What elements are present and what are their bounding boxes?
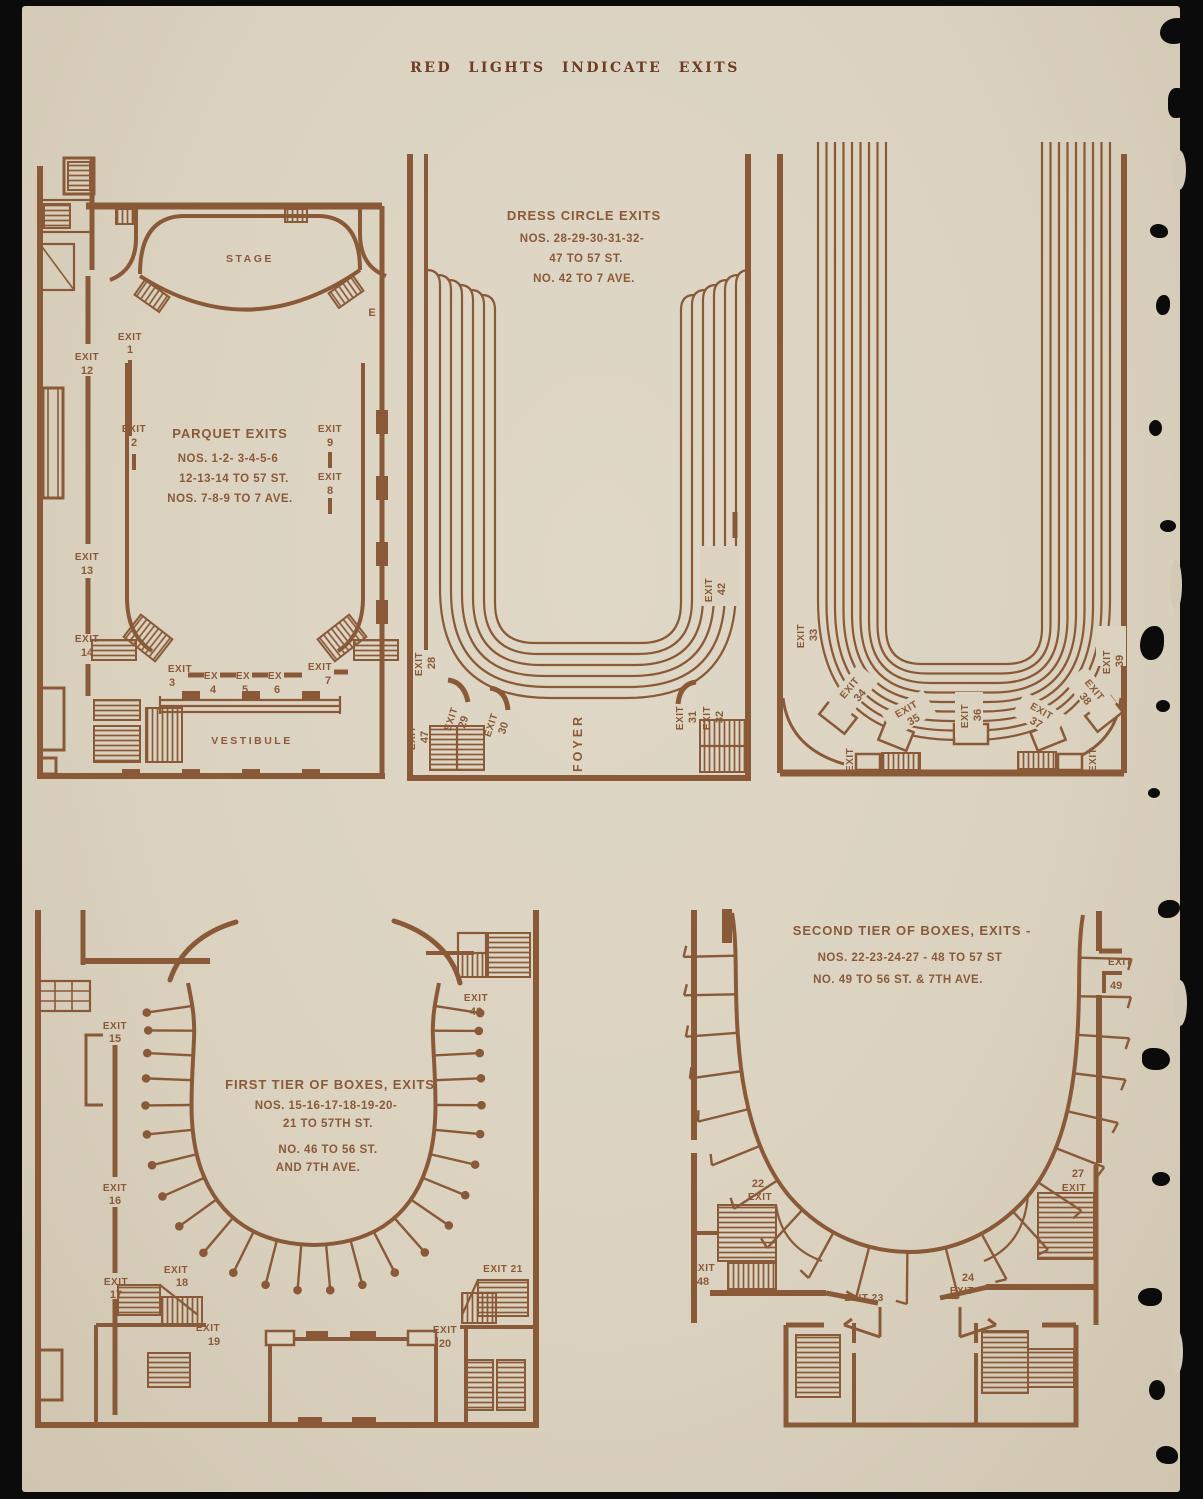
second-tier-info-line: NO. 49 TO 56 ST. & 7TH AVE. bbox=[813, 974, 983, 986]
exit-36-label: EXIT36 bbox=[955, 692, 984, 738]
svg-text:42: 42 bbox=[716, 583, 728, 595]
exit-4-label: EX4 bbox=[204, 671, 218, 696]
balcony-corner-exit-right: EXIT bbox=[1088, 748, 1099, 772]
svg-text:14: 14 bbox=[81, 647, 94, 659]
svg-text:27: 27 bbox=[1072, 1168, 1084, 1180]
balcony-seating-rows bbox=[818, 142, 1110, 740]
svg-text:31: 31 bbox=[687, 711, 699, 723]
balcony-stairs bbox=[856, 752, 1082, 770]
svg-text:EX: EX bbox=[204, 671, 218, 682]
parquet-info-line: 12-13-14 TO 57 ST. bbox=[179, 473, 289, 485]
first-tier-floor-plan: FIRST TIER OF BOXES, EXITS NOS. 15-16-17… bbox=[30, 895, 546, 1469]
svg-text:EXIT: EXIT bbox=[318, 472, 342, 483]
exit-12-label: EXIT12 bbox=[75, 352, 99, 377]
balcony-corner-exit-left: EXIT bbox=[845, 748, 856, 772]
svg-text:17: 17 bbox=[110, 1289, 122, 1301]
svg-text:EXIT: EXIT bbox=[950, 1286, 974, 1297]
exit-46-label: EXIT46 bbox=[464, 993, 488, 1018]
svg-text:47: 47 bbox=[419, 731, 431, 743]
balcony-labels: EXIT33 EXIT34 EXIT35 EXIT36 EXIT37 EXIT3… bbox=[796, 624, 1126, 772]
exit-1-label: EXIT1 bbox=[118, 332, 142, 356]
vestibule-label: VESTIBULE bbox=[211, 735, 292, 747]
svg-text:EXIT: EXIT bbox=[75, 552, 99, 563]
svg-text:EXIT: EXIT bbox=[318, 424, 342, 435]
svg-text:8: 8 bbox=[327, 485, 333, 497]
exit-21-label: EXIT 21 bbox=[483, 1264, 523, 1275]
svg-text:EXIT: EXIT bbox=[407, 726, 418, 750]
svg-text:33: 33 bbox=[808, 629, 820, 641]
second-tier-info-line: NOS. 22-23-24-27 - 48 TO 57 ST bbox=[818, 952, 1003, 964]
first-tier-info-title: FIRST TIER OF BOXES, EXITS bbox=[225, 1077, 435, 1092]
svg-text:30: 30 bbox=[496, 720, 511, 735]
page-title: RED LIGHTS INDICATE EXITS bbox=[410, 60, 740, 76]
svg-text:1: 1 bbox=[127, 344, 133, 356]
first-tier-info-line: NOS. 15-16-17-18-19-20- bbox=[255, 1100, 398, 1112]
svg-text:EX: EX bbox=[236, 671, 250, 682]
svg-text:15: 15 bbox=[109, 1033, 121, 1045]
svg-text:EXIT: EXIT bbox=[1062, 1183, 1086, 1194]
svg-text:EX: EX bbox=[268, 671, 282, 682]
svg-text:EXIT: EXIT bbox=[675, 706, 686, 730]
parquet-info-line: NOS. 7-8-9 TO 7 AVE. bbox=[167, 493, 292, 505]
exit-13-label: EXIT13 bbox=[75, 552, 99, 577]
svg-text:EXIT: EXIT bbox=[103, 1183, 127, 1194]
svg-text:20: 20 bbox=[439, 1338, 451, 1350]
svg-text:EXIT: EXIT bbox=[702, 706, 713, 730]
svg-text:16: 16 bbox=[109, 1195, 121, 1207]
svg-text:EXIT: EXIT bbox=[75, 634, 99, 645]
svg-text:48: 48 bbox=[697, 1276, 709, 1288]
exit-31-label: EXIT31 bbox=[675, 706, 699, 730]
scanned-program-page: RED LIGHTS INDICATE EXITS bbox=[0, 0, 1203, 1499]
exit-23-label: EXIT 23 bbox=[844, 1293, 884, 1304]
dress-circle-info-line: 47 TO 57 ST. bbox=[549, 253, 623, 265]
stage-label: STAGE bbox=[226, 253, 274, 265]
svg-text:18: 18 bbox=[176, 1277, 188, 1289]
svg-text:46: 46 bbox=[470, 1006, 482, 1018]
svg-text:EXIT: EXIT bbox=[1088, 748, 1099, 772]
dress-circle-walls bbox=[410, 154, 748, 778]
svg-text:13: 13 bbox=[81, 565, 93, 577]
dress-circle-seating-rows bbox=[427, 270, 749, 698]
svg-text:EXIT: EXIT bbox=[118, 332, 142, 343]
door-swing-23 bbox=[844, 1307, 880, 1337]
svg-text:32: 32 bbox=[714, 711, 726, 723]
svg-text:EXIT: EXIT bbox=[433, 1325, 457, 1336]
exit-7-label: EXIT7 bbox=[308, 662, 332, 687]
exit-30-label: EXIT30 bbox=[483, 712, 513, 742]
svg-text:EXIT: EXIT bbox=[103, 1021, 127, 1032]
dress-circle-info-title: DRESS CIRCLE EXITS bbox=[507, 208, 661, 223]
svg-text:EXIT: EXIT bbox=[960, 704, 971, 728]
svg-text:7: 7 bbox=[325, 675, 331, 687]
svg-text:EXIT: EXIT bbox=[691, 1263, 715, 1274]
exit-47-label: EXIT47 bbox=[407, 726, 431, 750]
dress-circle-stairs bbox=[430, 720, 746, 772]
parquet-info-title: PARQUET EXITS bbox=[172, 426, 287, 441]
svg-text:EXIT: EXIT bbox=[748, 1192, 772, 1203]
exit-8-label: EXIT8 bbox=[318, 472, 342, 497]
first-tier-info-line: 21 TO 57TH ST. bbox=[283, 1118, 373, 1130]
svg-text:9: 9 bbox=[327, 437, 333, 449]
svg-text:24: 24 bbox=[962, 1272, 975, 1284]
svg-text:EXIT: EXIT bbox=[845, 748, 856, 772]
dress-circle-info-line: NO. 42 TO 7 AVE. bbox=[533, 273, 635, 285]
svg-text:EXIT: EXIT bbox=[122, 424, 146, 435]
parquet-info-line: NOS. 1-2- 3-4-5-6 bbox=[178, 453, 279, 465]
exit-27-label: 27EXIT bbox=[1062, 1168, 1086, 1194]
parquet-floor-plan: STAGE VESTIBULE E PARQUET EXITS NOS. 1-2… bbox=[30, 148, 412, 796]
svg-text:2: 2 bbox=[131, 437, 137, 449]
second-tier-info-title: SECOND TIER OF BOXES, EXITS - bbox=[793, 923, 1031, 938]
svg-text:EXIT: EXIT bbox=[414, 652, 425, 676]
exit-9-label: EXIT9 bbox=[318, 424, 342, 449]
second-tier-lobby bbox=[786, 1307, 1076, 1425]
foyer-label: FOYER bbox=[571, 714, 585, 772]
svg-text:3: 3 bbox=[169, 677, 175, 689]
e-door-label: E bbox=[368, 307, 375, 319]
svg-text:12: 12 bbox=[81, 365, 93, 377]
parquet-seating-outline bbox=[127, 360, 363, 675]
svg-text:5: 5 bbox=[242, 684, 248, 696]
svg-text:6: 6 bbox=[274, 684, 280, 696]
svg-text:EXIT: EXIT bbox=[308, 662, 332, 673]
dress-circle-floor-plan: DRESS CIRCLE EXITS NOS. 28-29-30-31-32- … bbox=[402, 142, 774, 792]
svg-text:EXIT: EXIT bbox=[168, 664, 192, 675]
svg-text:EXIT: EXIT bbox=[196, 1323, 220, 1334]
svg-text:EXIT: EXIT bbox=[164, 1265, 188, 1276]
exit-16-label: EXIT16 bbox=[103, 1183, 127, 1207]
svg-text:36: 36 bbox=[972, 709, 984, 721]
svg-text:28: 28 bbox=[426, 657, 438, 669]
svg-text:EXIT: EXIT bbox=[1108, 957, 1132, 968]
balcony-floor-plan: EXIT33 EXIT34 EXIT35 EXIT36 EXIT37 EXIT3… bbox=[756, 142, 1140, 792]
svg-text:EXIT: EXIT bbox=[464, 993, 488, 1004]
svg-text:4: 4 bbox=[210, 684, 217, 696]
svg-text:22: 22 bbox=[752, 1178, 764, 1190]
dress-circle-info-line: NOS. 28-29-30-31-32- bbox=[520, 233, 644, 245]
svg-text:19: 19 bbox=[208, 1336, 220, 1348]
second-tier-floor-plan: SECOND TIER OF BOXES, EXITS - NOS. 22-23… bbox=[676, 895, 1156, 1469]
exit-18-label: EXIT18 bbox=[164, 1265, 188, 1289]
first-tier-info-line: NO. 46 TO 56 ST. bbox=[278, 1144, 377, 1156]
svg-text:39: 39 bbox=[1114, 655, 1126, 667]
svg-text:FOYER: FOYER bbox=[571, 714, 585, 772]
first-tier-info-line: AND 7TH AVE. bbox=[276, 1162, 361, 1174]
exit-28-label: EXIT28 bbox=[414, 652, 438, 676]
exit-15-label: EXIT15 bbox=[103, 1021, 127, 1045]
svg-text:EXIT: EXIT bbox=[104, 1277, 128, 1288]
exit-6-label: EX6 bbox=[268, 671, 282, 696]
exit-19-label: EXIT19 bbox=[196, 1323, 220, 1348]
first-tier-lobby bbox=[266, 1331, 436, 1425]
exit-33-label: EXIT33 bbox=[796, 624, 820, 648]
svg-text:EXIT: EXIT bbox=[75, 352, 99, 363]
exit-5-label: EX5 bbox=[236, 671, 250, 696]
svg-text:EXIT: EXIT bbox=[1102, 650, 1113, 674]
svg-text:EXIT: EXIT bbox=[796, 624, 807, 648]
svg-text:49: 49 bbox=[1110, 980, 1122, 992]
exit-39-label: EXIT39 bbox=[1096, 626, 1126, 674]
svg-text:EXIT: EXIT bbox=[704, 578, 715, 602]
first-tier-box-rail bbox=[188, 983, 439, 1245]
